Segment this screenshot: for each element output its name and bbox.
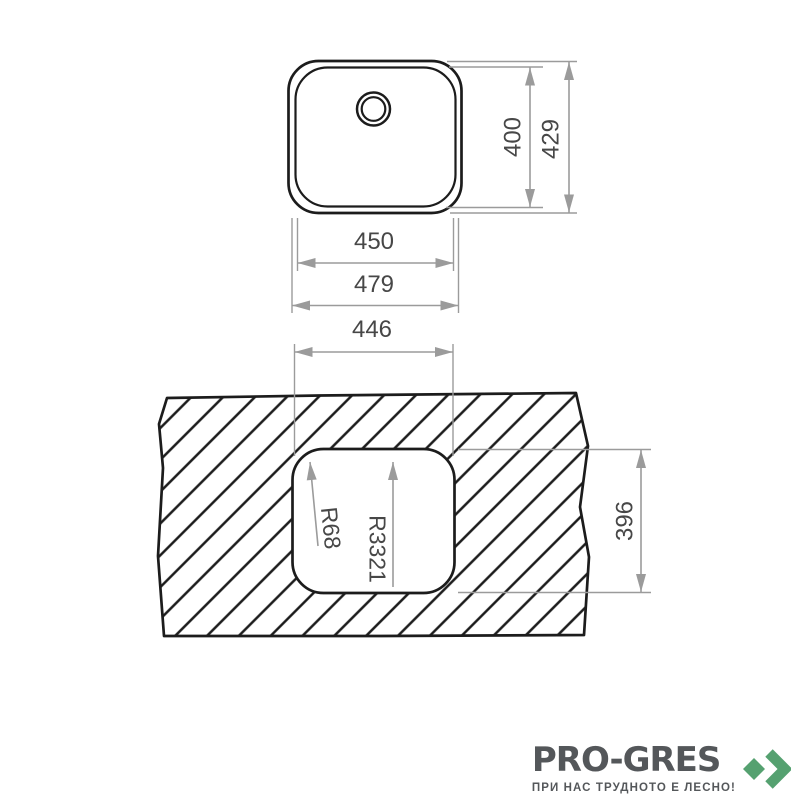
radius-r68-label: R68: [316, 506, 346, 551]
diamond-icon: [743, 758, 765, 780]
brand-name: PRO-GRES: [532, 743, 721, 779]
radius-r3321-label: R3321: [365, 515, 391, 583]
sink-top-view: [289, 61, 462, 213]
dim-label-446: 446: [352, 316, 392, 343]
dim-label-396: 396: [612, 501, 639, 541]
dim-label-400: 400: [500, 117, 527, 157]
dim-label-429: 429: [538, 119, 565, 159]
sink-outer-rim: [289, 61, 462, 213]
brand-tagline: ПРИ НАС ТРУДНОТО Е ЛЕСНО!: [532, 782, 736, 794]
sink-dimension-drawing: 450 479 446 400 429 396 R68 R3321: [0, 0, 800, 800]
dim-label-479: 479: [354, 271, 394, 298]
technical-drawing-page: 450 479 446 400 429 396 R68 R3321 PRO-GR…: [0, 0, 800, 800]
brand-logo-text: PRO-GRES ПРИ НАС ТРУДНОТО Е ЛЕСНО!: [532, 743, 736, 794]
brand-arrow-icon: [741, 745, 791, 793]
dim-label-450: 450: [354, 228, 394, 255]
brand-logo: PRO-GRES ПРИ НАС ТРУДНОТО Е ЛЕСНО!: [532, 743, 791, 794]
chevron-right-icon: [769, 753, 785, 785]
